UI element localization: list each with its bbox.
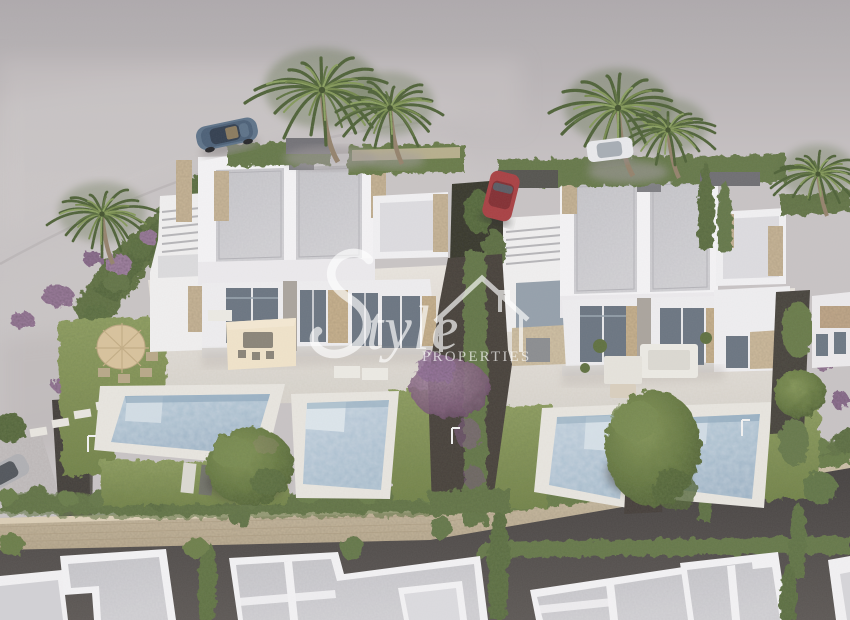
svg-text:PROPERTIES: PROPERTIES [422,349,531,365]
